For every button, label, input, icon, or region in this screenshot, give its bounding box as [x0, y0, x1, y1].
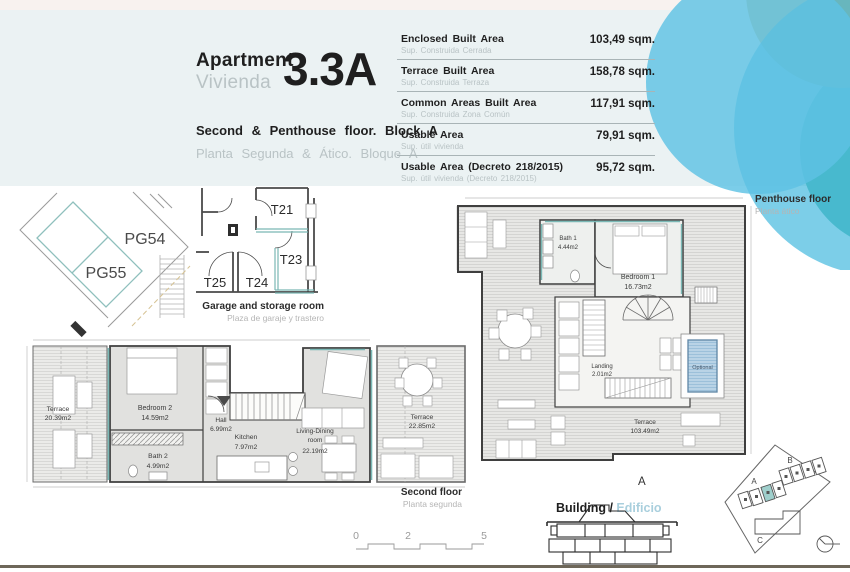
area-value: 117,91 sqm. — [590, 98, 655, 110]
area-row-terrace: Terrace Built Area Sup. Construida Terra… — [397, 59, 655, 91]
shaft-block-core — [231, 227, 235, 233]
area-label: Common Areas Built Area — [401, 97, 590, 109]
bath1-name: Bath 1 — [559, 236, 577, 242]
garage-caption: Garage and storage room Plaza de garaje … — [196, 301, 324, 323]
area-table: Enclosed Built Area Sup. Construida Cerr… — [397, 28, 655, 187]
common-stair-hatch — [695, 287, 717, 303]
storage-t23-label: T23 — [280, 252, 302, 267]
hall-area: 6.99m2 — [210, 426, 232, 433]
scale-bar: 0 2 5 — [348, 528, 493, 554]
bath2-name: Bath 2 — [148, 453, 168, 460]
area-label-es: Sup. Construida Cerrada — [401, 46, 590, 55]
area-label: Usable Area — [401, 129, 596, 141]
kitchen-counter — [217, 453, 298, 481]
penthouse-caption-es: Planta ático — [755, 206, 831, 216]
terrace-right-area: 22.85m2 — [409, 423, 436, 430]
area-label-es: Sup. Construida Zona Común — [401, 110, 590, 119]
block-letter: A — [638, 476, 646, 488]
subtitle-es: Planta Segunda & Ático. Bloque A — [196, 146, 418, 161]
landing-name: Landing — [591, 364, 612, 370]
optional-pool: Optional — [681, 334, 724, 398]
bottom-rule — [0, 565, 850, 568]
area-row-common: Common Areas Built Area Sup. Construida … — [397, 91, 655, 123]
penthouse-caption-en: Penthouse floor — [755, 194, 831, 205]
title-en: Apartment — [196, 50, 294, 72]
garage-caption-en: Garage and storage room — [196, 301, 324, 312]
sofa — [302, 408, 364, 428]
parking-space-pg54-label: PG54 — [125, 231, 166, 248]
unit-number: 3.3A — [283, 42, 376, 96]
pool-optional-label: Optional — [692, 365, 713, 371]
brochure-page: Apartment Vivienda 3.3A Second & Penthou… — [0, 0, 850, 572]
scale-tick-5: 5 — [481, 530, 487, 542]
compass-icon — [817, 536, 840, 552]
living-area: 22.19m2 — [302, 448, 328, 455]
area-label: Enclosed Built Area — [401, 33, 590, 45]
bath2-area: 4.99m2 — [147, 463, 170, 470]
site-plan: A B C — [723, 433, 848, 563]
second-floor-caption-en: Second floor — [380, 487, 462, 498]
area-value: 79,91 sqm. — [596, 130, 655, 142]
scale-bar-line — [356, 544, 484, 549]
area-row-usable-decreto: Usable Area (Decreto 218/2015) Sup. útil… — [397, 155, 655, 187]
terrace-left-name: Terrace — [47, 406, 70, 413]
area-value: 158,78 sqm. — [590, 66, 655, 78]
corridor-wardrobe-hatch — [112, 433, 183, 445]
area-label-es: Sup. útil vivienda — [401, 142, 596, 151]
bed — [127, 348, 177, 394]
deco-blue-light-circle — [646, 0, 850, 194]
building-elevation-sketch — [545, 498, 695, 568]
void-hatch — [583, 300, 605, 356]
area-label-es: Sup. útil vivienda (Decreto 218/2015) — [401, 174, 596, 183]
penthouse-floor-plan: Optional Bath 1 4.44m2 Bedroom 1 16.73 — [455, 192, 755, 484]
site-block-a-label: A — [751, 477, 757, 486]
terrace-left-area: 20.39m2 — [45, 415, 72, 422]
terrace-right-name: Terrace — [411, 414, 434, 421]
penthouse-caption: Penthouse floor Planta ático — [755, 194, 831, 216]
title-es: Vivienda — [196, 72, 271, 94]
bedroom1-name: Bedroom 1 — [621, 274, 655, 281]
hall-name: Hall — [215, 417, 227, 424]
second-floor-caption: Second floor Planta segunda — [380, 487, 462, 509]
parking-pillar — [70, 321, 86, 337]
bedroom2-name: Bedroom 2 — [138, 405, 172, 412]
parking-space-pg55-label: PG55 — [86, 265, 127, 282]
area-label: Usable Area (Decreto 218/2015) — [401, 161, 596, 173]
area-value: 103,49 sqm. — [590, 34, 655, 46]
second-floor-plan: Terrace 20.39m2 Bedroom 2 14.59m2 Bath 2… — [25, 338, 467, 490]
parking-context-walls — [20, 192, 188, 327]
block-b-houses — [779, 457, 826, 485]
garage-caption-es: Plaza de garaje y trastero — [196, 313, 324, 323]
site-block-b-label: B — [787, 456, 792, 465]
kitchen-name: Kitchen — [235, 434, 258, 441]
block-a-houses — [738, 480, 786, 508]
scale-tick-0: 0 — [353, 530, 359, 542]
area-label-es: Sup. Construida Terraza — [401, 78, 590, 87]
stairs — [230, 393, 305, 420]
site-block-c-label: C — [757, 536, 763, 545]
area-row-enclosed: Enclosed Built Area Sup. Construida Cerr… — [397, 28, 655, 59]
living-name2: room — [308, 437, 323, 444]
straight-stair — [605, 378, 671, 398]
landing-area: 2.01m2 — [592, 372, 613, 378]
storage-t21-label: T21 — [271, 202, 293, 217]
bath1-area: 4.44m2 — [558, 245, 579, 251]
scale-tick-2: 2 — [405, 530, 411, 542]
living-name1: Living-Dining — [296, 428, 334, 435]
bed — [613, 224, 667, 274]
area-row-usable: Usable Area Sup. útil vivienda 79,91 sqm… — [397, 123, 655, 155]
ramp-dashed-line — [132, 266, 190, 326]
area-value: 95,72 sqm. — [596, 162, 655, 174]
penthouse-terrace-name: Terrace — [634, 419, 656, 426]
parking-stalls-outline — [37, 202, 142, 307]
second-floor-caption-es: Planta segunda — [380, 499, 462, 509]
round-table — [401, 364, 433, 396]
bedroom2-area: 14.59m2 — [141, 415, 168, 422]
penthouse-terrace-area: 103.49m2 — [631, 428, 660, 435]
storage-rooms-plan: T21 T23 T24 T25 — [196, 186, 328, 308]
rug — [322, 351, 367, 398]
storage-t25-label: T25 — [204, 275, 226, 290]
garage-parking-plan: PG54 PG55 — [12, 186, 192, 338]
kitchen-area: 7.97m2 — [235, 444, 258, 451]
storage-t24-label: T24 — [246, 275, 268, 290]
block-c-building — [755, 511, 800, 534]
bedroom1-area: 16.73m2 — [624, 284, 651, 291]
stair-hatch — [160, 255, 184, 318]
area-label: Terrace Built Area — [401, 65, 590, 77]
